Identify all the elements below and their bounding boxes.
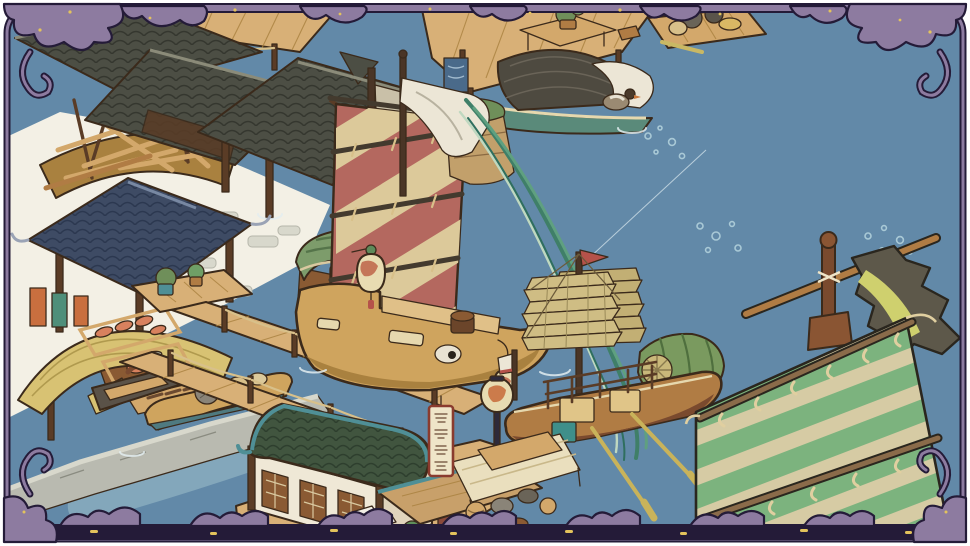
game-viewport: 飛雲茶舍 [0,0,970,546]
boat-poster [444,58,468,92]
scene-canvas [0,0,970,546]
painted-eye [435,345,461,363]
cargo-barrel[interactable] [451,311,474,333]
dock-sign[interactable] [429,396,453,476]
